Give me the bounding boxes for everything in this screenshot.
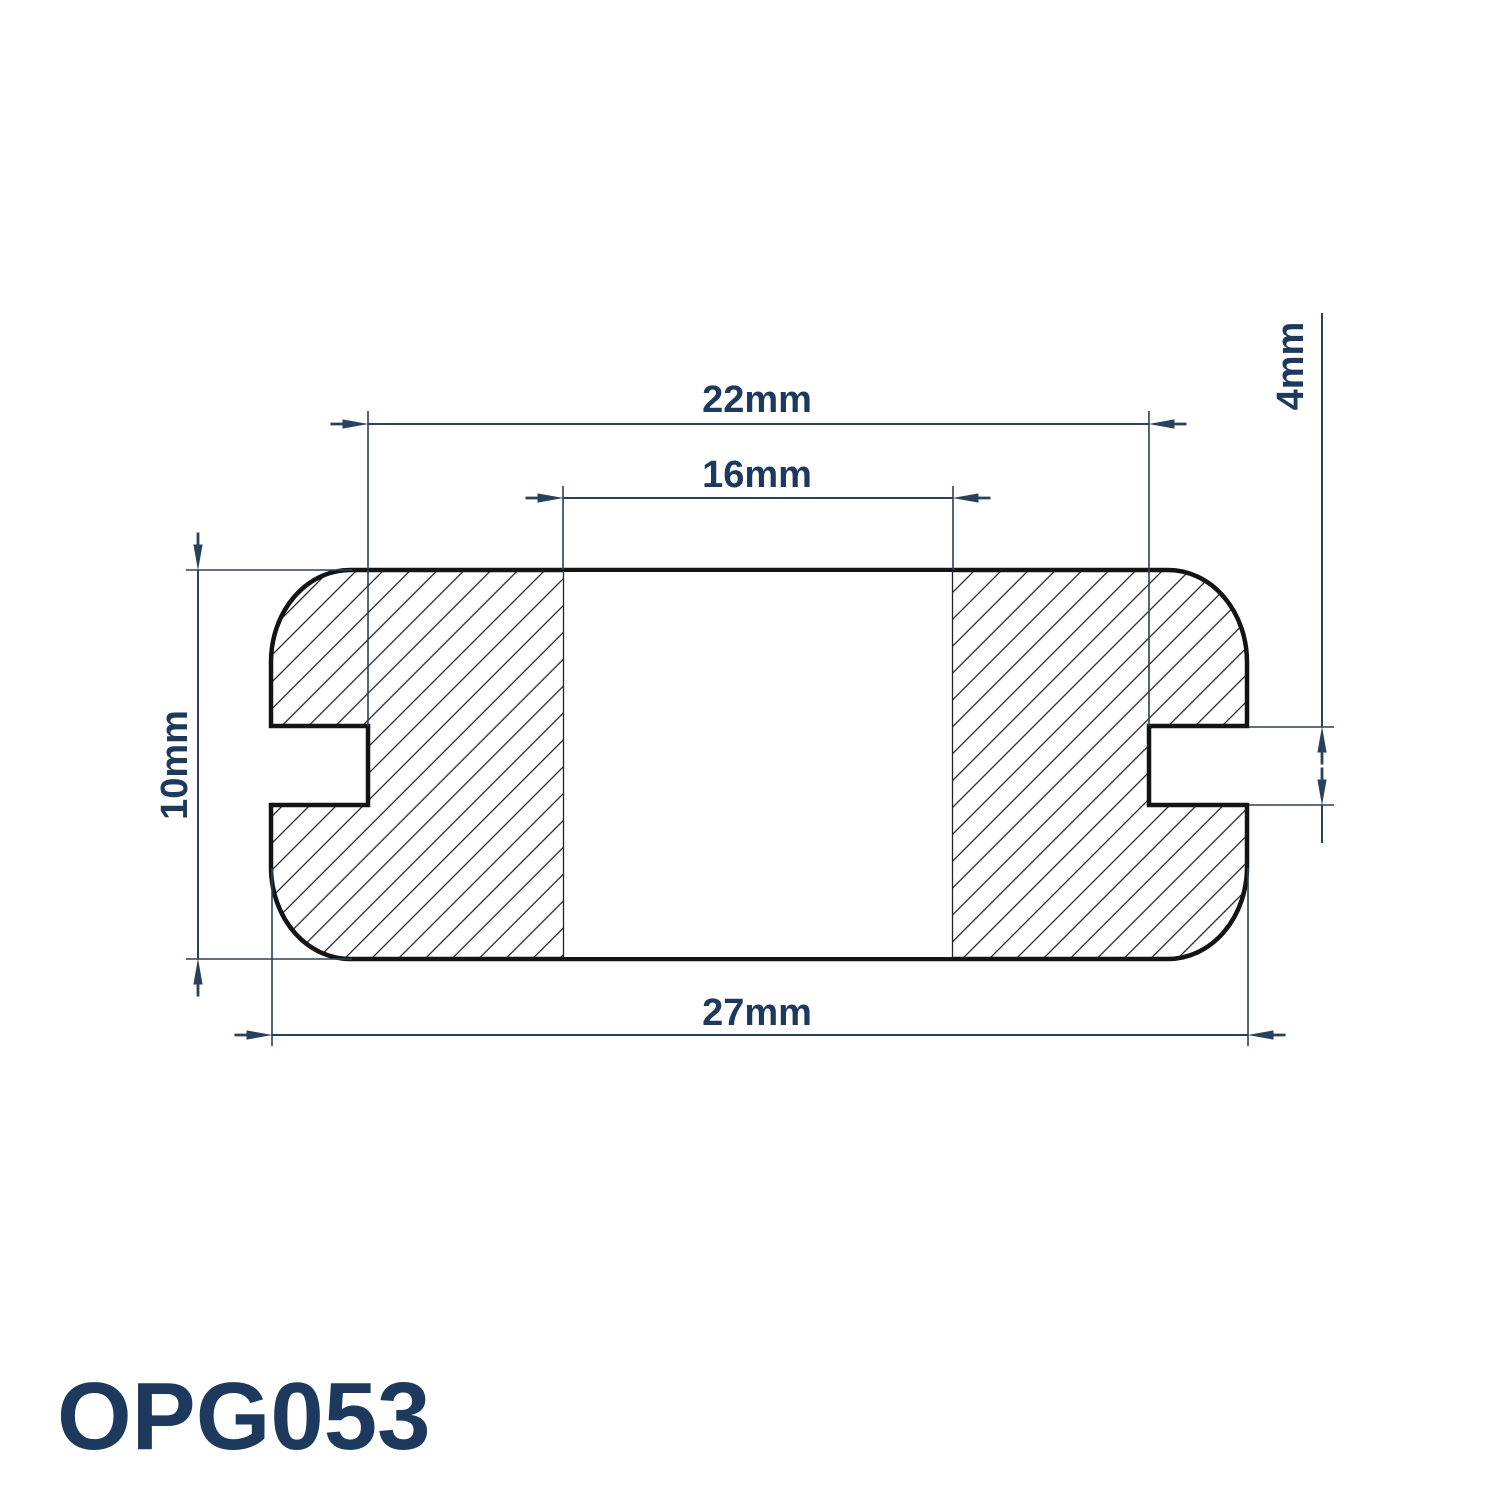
dimension-value: 4mm xyxy=(1270,322,1312,411)
grommet-cross-section xyxy=(271,570,1247,959)
drawing-page: 22mm 16mm 10mm 27mm 4 xyxy=(0,0,1500,1500)
dimension-groove-width: 4mm xyxy=(1249,313,1334,843)
dimension-value: 10mm xyxy=(154,710,196,820)
inner-bore-region xyxy=(564,572,952,957)
dimension-inner-diameter: 16mm xyxy=(563,454,953,570)
dimension-value: 16mm xyxy=(702,454,812,496)
dimension-value: 27mm xyxy=(702,992,812,1034)
dimension-value: 22mm xyxy=(702,379,812,421)
technical-drawing: 22mm 16mm 10mm 27mm 4 xyxy=(0,0,1500,1500)
part-number-label: OPG053 xyxy=(57,1363,431,1470)
